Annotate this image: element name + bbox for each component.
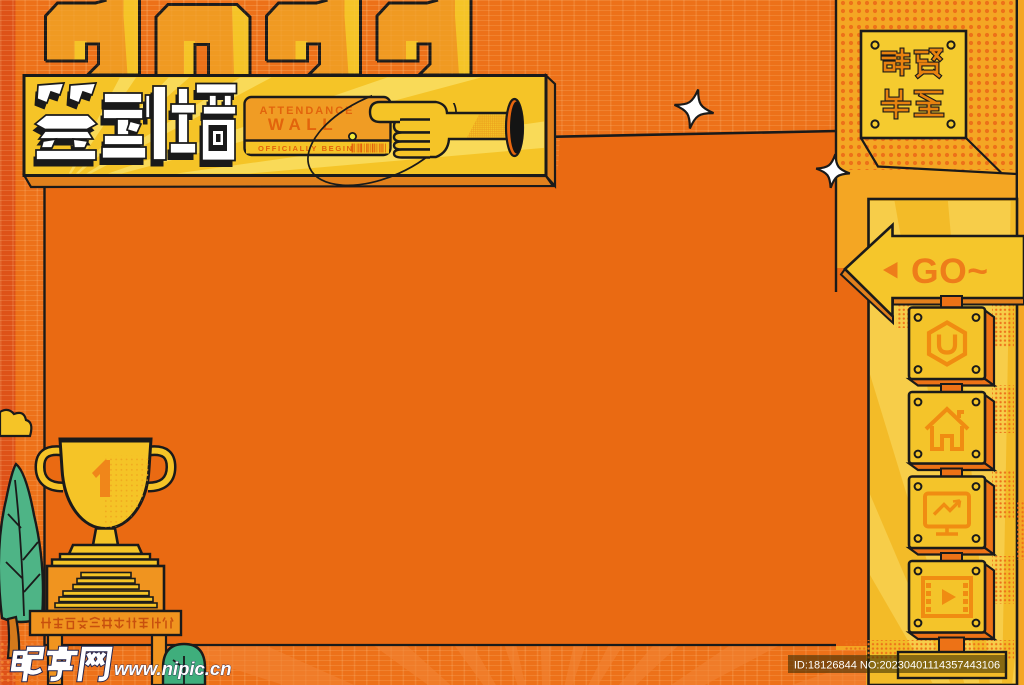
svg-text:WALL: WALL <box>268 115 338 134</box>
svg-text:ID:18126844 NO:202304011143574: ID:18126844 NO:20230401114357443106 <box>794 660 1000 672</box>
svg-text:OFFICIALLY BEGIN: OFFICIALLY BEGIN <box>258 144 354 153</box>
svg-text:GO~: GO~ <box>911 251 988 291</box>
svg-text:www.nipic.cn: www.nipic.cn <box>114 658 232 679</box>
